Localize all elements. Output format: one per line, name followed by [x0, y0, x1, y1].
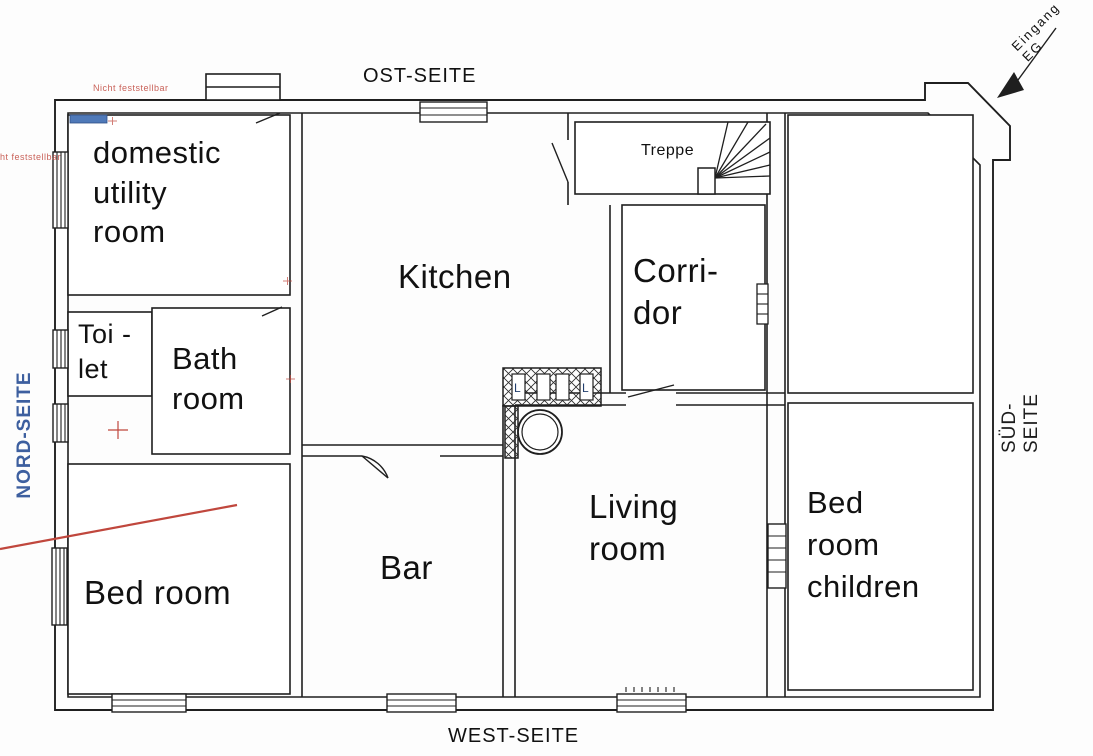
east-side-label: OST-SEITE	[363, 65, 476, 88]
boiler-circle-icon	[518, 410, 562, 454]
domestic-utility-room-label: domestic utility room	[93, 133, 221, 252]
west-side-label: WEST-SEITE	[448, 725, 579, 748]
living-room-label: Living room	[589, 486, 678, 570]
floor-plan: L L	[0, 0, 1093, 756]
window-left-1	[53, 152, 68, 228]
floor-plan-drawing: L L	[0, 0, 1093, 756]
window-bottom-1	[112, 694, 186, 712]
window-left-2	[53, 330, 68, 368]
flue-label: L	[514, 381, 521, 395]
window-left-3	[53, 404, 68, 442]
red-note-top: Nicht feststellbar	[93, 83, 169, 93]
bathroom-label: Bath room	[172, 339, 245, 418]
upper-right-room-box	[788, 115, 973, 393]
bar-label: Bar	[380, 547, 433, 589]
window-bottom-2	[387, 694, 456, 712]
bedroom-children-label: Bed room children	[807, 482, 920, 608]
blue-window-marker	[70, 115, 107, 123]
radiator-living	[768, 524, 786, 588]
window-kitchen-north	[420, 102, 487, 122]
corridor-label: Corri- dor	[633, 250, 718, 334]
flue-block: L L	[503, 368, 601, 458]
flue-label: L	[582, 381, 589, 395]
stairs-label: Treppe	[641, 142, 694, 160]
south-side-label: SÜD-SEITE	[999, 381, 1043, 453]
window-left-4	[52, 548, 67, 625]
door-kitchen-stairs	[552, 143, 568, 182]
window-bottom-3	[617, 687, 686, 712]
north-side-label: NORD-SEITE	[14, 371, 36, 498]
toilet-label: Toi - let	[78, 317, 132, 386]
door-bar	[362, 456, 388, 478]
kitchen-label: Kitchen	[398, 256, 512, 298]
red-plus-marker	[108, 421, 128, 439]
red-note-left: ht feststellbar	[0, 152, 61, 162]
bedroom-label: Bed room	[84, 572, 231, 614]
chimney-top	[206, 74, 280, 100]
heater-corridor	[757, 284, 768, 324]
